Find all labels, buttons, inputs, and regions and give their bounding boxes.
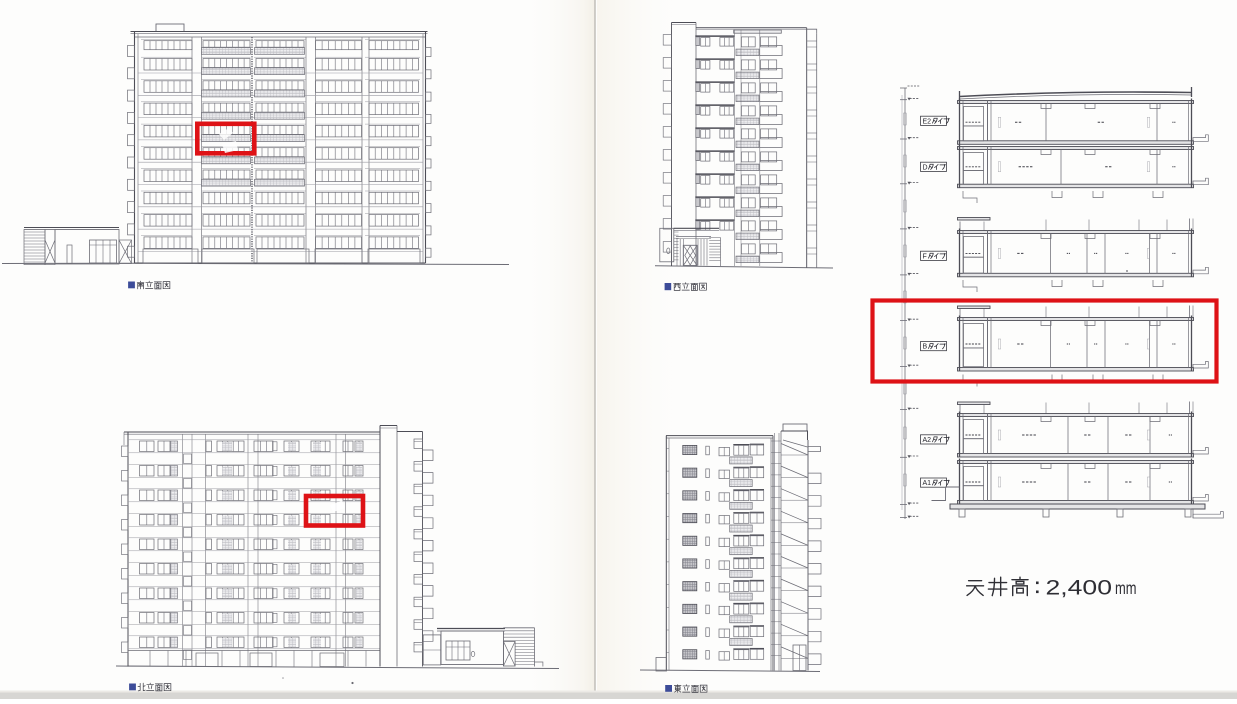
svg-text:E2: E2: [923, 118, 932, 125]
svg-text:F: F: [923, 253, 927, 260]
svg-text:A2: A2: [923, 437, 932, 444]
svg-text:A1: A1: [923, 480, 932, 487]
svg-text:mm: mm: [1115, 578, 1137, 598]
svg-text:D: D: [923, 164, 928, 171]
svg-text:2,400: 2,400: [1046, 577, 1113, 600]
svg-text:B: B: [923, 344, 928, 351]
